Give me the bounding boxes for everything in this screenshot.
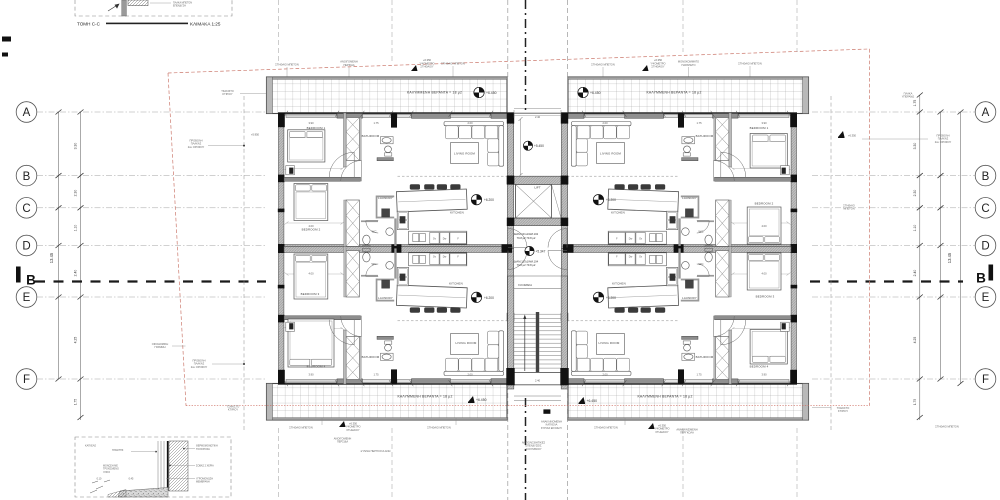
svg-text:3.90: 3.90 bbox=[308, 372, 314, 376]
svg-text:+6.200: +6.200 bbox=[606, 296, 616, 300]
svg-text:A: A bbox=[23, 107, 31, 119]
svg-text:ΞΥΛΙΝΗ ΠΕΡΓΚΟΛΑ ΑΝΩ: ΞΥΛΙΝΗ ΠΕΡΓΚΟΛΑ ΑΝΩ bbox=[361, 449, 391, 453]
svg-text:4.00: 4.00 bbox=[761, 224, 767, 228]
svg-text:2.00: 2.00 bbox=[467, 372, 473, 376]
svg-text:BEDROOM 1: BEDROOM 1 bbox=[750, 126, 769, 130]
svg-text:3.90: 3.90 bbox=[761, 121, 767, 125]
svg-text:2.30: 2.30 bbox=[913, 190, 917, 197]
svg-text:LIVING ROOM: LIVING ROOM bbox=[454, 152, 475, 156]
svg-text:2.40: 2.40 bbox=[535, 379, 541, 383]
svg-text:E: E bbox=[23, 292, 31, 304]
svg-text:F: F bbox=[982, 374, 989, 386]
svg-text:3.30: 3.30 bbox=[913, 143, 917, 150]
svg-text:ΣΤΗΘΑΙΟ ΜΠΕΤΟΝ: ΣΤΗΘΑΙΟ ΜΠΕΤΟΝ bbox=[594, 425, 618, 429]
svg-text:ΣΤΗΘΑΙΟΥ: ΣΤΗΘΑΙΟΥ bbox=[651, 65, 664, 69]
svg-text:ΚΑΓΚΕΛΟ: ΚΑΓΚΕΛΟ bbox=[85, 445, 96, 448]
svg-text:+6.200: +6.200 bbox=[606, 198, 616, 202]
svg-text:ΣΤΗΘΑΙΟ ΜΠΕΤΟΝ: ΣΤΗΘΑΙΟ ΜΠΕΤΟΝ bbox=[935, 424, 959, 428]
svg-text:ΣΤΗΘΑΙΟΥ: ΣΤΗΘΑΙΟΥ bbox=[346, 428, 359, 432]
svg-text:KITCHEN: KITCHEN bbox=[611, 210, 625, 214]
svg-text:13.45: 13.45 bbox=[49, 252, 54, 263]
svg-text:WC: WC bbox=[698, 229, 703, 233]
svg-text:1.75: 1.75 bbox=[913, 399, 917, 405]
svg-text:+6.450: +6.450 bbox=[590, 91, 601, 95]
svg-text:BATHROOM: BATHROOM bbox=[362, 134, 380, 138]
svg-text:+5.950: +5.950 bbox=[251, 132, 260, 136]
svg-text:KITCHEN: KITCHEN bbox=[449, 281, 463, 285]
svg-text:+6.200: +6.200 bbox=[484, 198, 494, 202]
svg-text:BATHROOM: BATHROOM bbox=[696, 355, 714, 359]
svg-text:Dw: Dw bbox=[629, 256, 633, 259]
svg-text:LAUNDRY: LAUNDRY bbox=[378, 196, 393, 200]
svg-text:ΠΑΡΑΠΕΤΟ: ΠΑΡΑΠΕΤΟ bbox=[681, 63, 695, 67]
svg-text:2ου ΟΡΟΦΟΥ: 2ου ΟΡΟΦΟΥ bbox=[191, 365, 208, 369]
svg-text:1.10: 1.10 bbox=[74, 225, 78, 232]
svg-text:0.45: 0.45 bbox=[129, 477, 134, 480]
svg-text:+6.450: +6.450 bbox=[476, 398, 487, 402]
svg-text:ΤΟΜΗ C-C: ΤΟΜΗ C-C bbox=[77, 21, 101, 26]
svg-text:79.8 μ2 79.8 μ2: 79.8 μ2 79.8 μ2 bbox=[517, 263, 536, 267]
svg-text:2.00: 2.00 bbox=[602, 372, 608, 376]
svg-text:ΚΤΙΡΙΟΥ: ΚΤΙΡΙΟΥ bbox=[838, 409, 848, 413]
svg-text:KITCHEN: KITCHEN bbox=[450, 210, 464, 214]
svg-text:3.30: 3.30 bbox=[74, 143, 78, 150]
svg-text:+6.450: +6.450 bbox=[587, 399, 598, 403]
svg-text:ΚΑΛΥΜΜΕΝΗ ΒΕΡΑΝΤΑ = 18 μ2: ΚΑΛΥΜΜΕΝΗ ΒΕΡΑΝΤΑ = 18 μ2 bbox=[397, 394, 452, 398]
svg-text:ΕΠΕΝΔΥΣΗ: ΕΠΕΝΔΥΣΗ bbox=[173, 5, 186, 8]
svg-text:ΣΟΒΑΣ 2 ΧΕΡΙΑ: ΣΟΒΑΣ 2 ΧΕΡΙΑ bbox=[196, 464, 214, 467]
svg-text:2.00: 2.00 bbox=[602, 121, 608, 125]
svg-text:2.40: 2.40 bbox=[74, 270, 78, 277]
svg-text:ΜΠΕΤΟΝ: ΜΠΕΤΟΝ bbox=[843, 207, 854, 211]
svg-text:ΑΛΟΥΜΙΝΙΟΥ: ΑΛΟΥΜΙΝΙΟΥ bbox=[525, 447, 541, 451]
svg-text:BEDROOM 1: BEDROOM 1 bbox=[307, 126, 326, 130]
svg-text:13.45: 13.45 bbox=[947, 252, 952, 263]
svg-text:2ου ΟΡΟΦΟΥ: 2ου ΟΡΟΦΟΥ bbox=[935, 140, 952, 144]
svg-text:WC: WC bbox=[698, 262, 703, 266]
svg-text:C: C bbox=[981, 203, 989, 215]
svg-text:ΚΤΙΡΙΟΥ: ΚΤΙΡΙΟΥ bbox=[228, 408, 238, 412]
svg-text:4.25: 4.25 bbox=[913, 337, 917, 344]
svg-text:B: B bbox=[976, 271, 986, 286]
svg-text:ΓΡΑΜΜΗ: ΓΡΑΜΜΗ bbox=[155, 345, 166, 349]
svg-text:BEDROOM 2: BEDROOM 2 bbox=[302, 228, 321, 232]
svg-text:BEDROOM 3: BEDROOM 3 bbox=[301, 292, 320, 296]
svg-text:ΚΑΛΥΜΜΕΝΗ ΒΕΡΑΝΤΑ = 18 μ2: ΚΑΛΥΜΜΕΝΗ ΒΕΡΑΝΤΑ = 18 μ2 bbox=[646, 90, 701, 94]
svg-text:+6.350: +6.350 bbox=[848, 133, 857, 137]
svg-text:ΥΠΕΡΑΝΩ: ΥΠΕΡΑΝΩ bbox=[902, 95, 914, 99]
svg-text:B: B bbox=[26, 273, 36, 288]
svg-text:ΣΤΗΘΑΙΟ ΜΠΕΤΟΝ: ΣΤΗΘΑΙΟ ΜΠΕΤΟΝ bbox=[441, 61, 465, 65]
svg-text:ΓΡΑΝΙΤΗΣ: ΓΡΑΝΙΤΗΣ bbox=[112, 449, 124, 452]
svg-text:4.00: 4.00 bbox=[761, 272, 767, 276]
svg-text:LIVING ROOM: LIVING ROOM bbox=[600, 152, 621, 156]
svg-text:LAUNDRY: LAUNDRY bbox=[682, 196, 697, 200]
svg-text:1.75: 1.75 bbox=[913, 100, 917, 107]
svg-text:BEDROOM 4: BEDROOM 4 bbox=[750, 364, 769, 368]
svg-text:ΚΑΛΥΜΜΕΝΗ ΒΕΡΑΝΤΑ = 18 μ2: ΚΑΛΥΜΜΕΝΗ ΒΕΡΑΝΤΑ = 18 μ2 bbox=[407, 90, 462, 94]
svg-text:Dw: Dw bbox=[629, 238, 633, 241]
svg-text:BEDROOM 4: BEDROOM 4 bbox=[307, 364, 326, 368]
svg-text:1.75: 1.75 bbox=[373, 372, 379, 376]
svg-text:ΚΤΙΡΙΟΥ: ΚΤΙΡΙΟΥ bbox=[222, 92, 232, 96]
svg-text:WC: WC bbox=[371, 229, 376, 233]
svg-text:2.00: 2.00 bbox=[467, 121, 473, 125]
svg-text:LAUNDRY: LAUNDRY bbox=[378, 296, 393, 300]
svg-text:ΤΟΙΧΟΠΟΙΙΑ: ΤΟΙΧΟΠΟΙΙΑ bbox=[196, 448, 210, 451]
svg-text:1.75: 1.75 bbox=[373, 121, 379, 125]
svg-text:BEDROOM 2: BEDROOM 2 bbox=[755, 202, 774, 206]
svg-text:LIVING ROOM: LIVING ROOM bbox=[456, 341, 477, 345]
svg-text:1.75: 1.75 bbox=[696, 121, 702, 125]
svg-text:+6.200: +6.200 bbox=[484, 296, 494, 300]
svg-text:ΣΤΗΘΑΙΟΥ: ΣΤΗΘΑΙΟΥ bbox=[655, 430, 668, 434]
svg-text:ΣΤΗΘΑΙΟ ΜΠΕΤΟΝ: ΣΤΗΘΑΙΟ ΜΠΕΤΟΝ bbox=[427, 425, 451, 429]
svg-text:ΥΛΙΚΟ: ΥΛΙΚΟ bbox=[103, 471, 110, 474]
svg-text:4.00: 4.00 bbox=[308, 272, 314, 276]
svg-text:ΚΑΛΥΜΜΕΝΗ ΒΕΡΑΝΤΑ = 18 μ2: ΚΑΛΥΜΜΕΝΗ ΒΕΡΑΝΤΑ = 18 μ2 bbox=[637, 394, 692, 398]
svg-text:ΜΕΜΒΡΑΝΗ: ΜΕΜΒΡΑΝΗ bbox=[196, 481, 210, 484]
svg-text:Dw: Dw bbox=[443, 238, 447, 241]
svg-text:ΣΤΗΘΑΙΟ ΜΠΕΤΟΝ: ΣΤΗΘΑΙΟ ΜΠΕΤΟΝ bbox=[289, 425, 313, 429]
svg-text:ΣΤΗΘΑΙΟ ΜΠΕΤΟΝ: ΣΤΗΘΑΙΟ ΜΠΕΤΟΝ bbox=[738, 61, 762, 65]
svg-text:WC: WC bbox=[371, 262, 376, 266]
svg-text:E: E bbox=[982, 292, 990, 304]
svg-text:2.40: 2.40 bbox=[913, 270, 917, 277]
svg-text:D: D bbox=[981, 241, 989, 253]
svg-text:+5.450: +5.450 bbox=[534, 144, 544, 148]
svg-text:4.25: 4.25 bbox=[74, 337, 78, 344]
svg-text:1.75: 1.75 bbox=[696, 372, 702, 376]
svg-text:KITCHEN: KITCHEN bbox=[612, 281, 626, 285]
svg-text:ΔΙΑΜ.101 ΔΙΑΜ.102: ΔΙΑΜ.101 ΔΙΑΜ.102 bbox=[514, 232, 539, 236]
svg-text:2.40: 2.40 bbox=[535, 115, 541, 119]
svg-text:ΣΤΗΘΑΙΟ ΜΠΕΤΟΝ: ΣΤΗΘΑΙΟ ΜΠΕΤΟΝ bbox=[591, 63, 615, 67]
svg-text:BATHROOM: BATHROOM bbox=[362, 355, 380, 359]
svg-text:ΚΥΡΙΑΣ ΕΙΣΟΔΟΥ: ΚΥΡΙΑΣ ΕΙΣΟΔΟΥ bbox=[541, 426, 563, 430]
svg-text:ΠΕΡΣΙΔΑ: ΠΕΡΣΙΔΑ bbox=[337, 440, 348, 444]
svg-text:ΣΤΗΘΑΙΟ ΜΠΕΤΟΝ: ΣΤΗΘΑΙΟ ΜΠΕΤΟΝ bbox=[275, 63, 299, 67]
svg-text:2.30: 2.30 bbox=[74, 190, 78, 197]
svg-text:B: B bbox=[982, 171, 990, 183]
svg-text:D: D bbox=[22, 241, 30, 253]
svg-text:1.75: 1.75 bbox=[74, 399, 78, 405]
svg-text:ΚΛΙΜΑΚΑ 1:25: ΚΛΙΜΑΚΑ 1:25 bbox=[190, 21, 221, 26]
svg-text:4.00: 4.00 bbox=[308, 224, 314, 228]
svg-text:3.90: 3.90 bbox=[308, 121, 314, 125]
svg-text:C: C bbox=[22, 203, 30, 215]
svg-text:F: F bbox=[23, 374, 30, 386]
svg-text:LIFT: LIFT bbox=[534, 186, 540, 190]
svg-text:ΠΕΡΓΚΟΛΑ: ΠΕΡΓΚΟΛΑ bbox=[680, 431, 694, 435]
svg-text:3.90: 3.90 bbox=[761, 372, 767, 376]
svg-text:A: A bbox=[982, 107, 990, 119]
svg-text:BATHROOM: BATHROOM bbox=[696, 134, 714, 138]
svg-text:LIVING ROOM: LIVING ROOM bbox=[599, 341, 620, 345]
svg-text:+6.450: +6.450 bbox=[486, 91, 497, 95]
svg-text:0.10: 0.10 bbox=[97, 477, 102, 480]
svg-text:B: B bbox=[23, 171, 31, 183]
svg-text:ΠΕΡΣΙΔΑ: ΠΕΡΣΙΔΑ bbox=[343, 63, 354, 67]
svg-text:ΣΤΗΘΑΙΟΥ: ΣΤΗΘΑΙΟΥ bbox=[420, 65, 433, 69]
svg-text:1.10: 1.10 bbox=[913, 225, 917, 232]
svg-text:ΔΙΑΜ.103 ΔΙΑΜ.104: ΔΙΑΜ.103 ΔΙΑΜ.104 bbox=[514, 259, 539, 263]
svg-text:Χ.ΚΛΙΜΑΚΑ: Χ.ΚΛΙΜΑΚΑ bbox=[518, 283, 532, 287]
svg-text:79.8 μ2 79.8 μ2: 79.8 μ2 79.8 μ2 bbox=[517, 236, 536, 240]
svg-text:LAUNDRY: LAUNDRY bbox=[682, 296, 697, 300]
svg-text:Dw: Dw bbox=[443, 256, 447, 259]
svg-text:2ου ΟΡΟΦΟΥ: 2ου ΟΡΟΦΟΥ bbox=[188, 145, 205, 149]
svg-text:+5.347: +5.347 bbox=[536, 249, 546, 253]
svg-text:BEDROOM 3: BEDROOM 3 bbox=[756, 294, 775, 298]
